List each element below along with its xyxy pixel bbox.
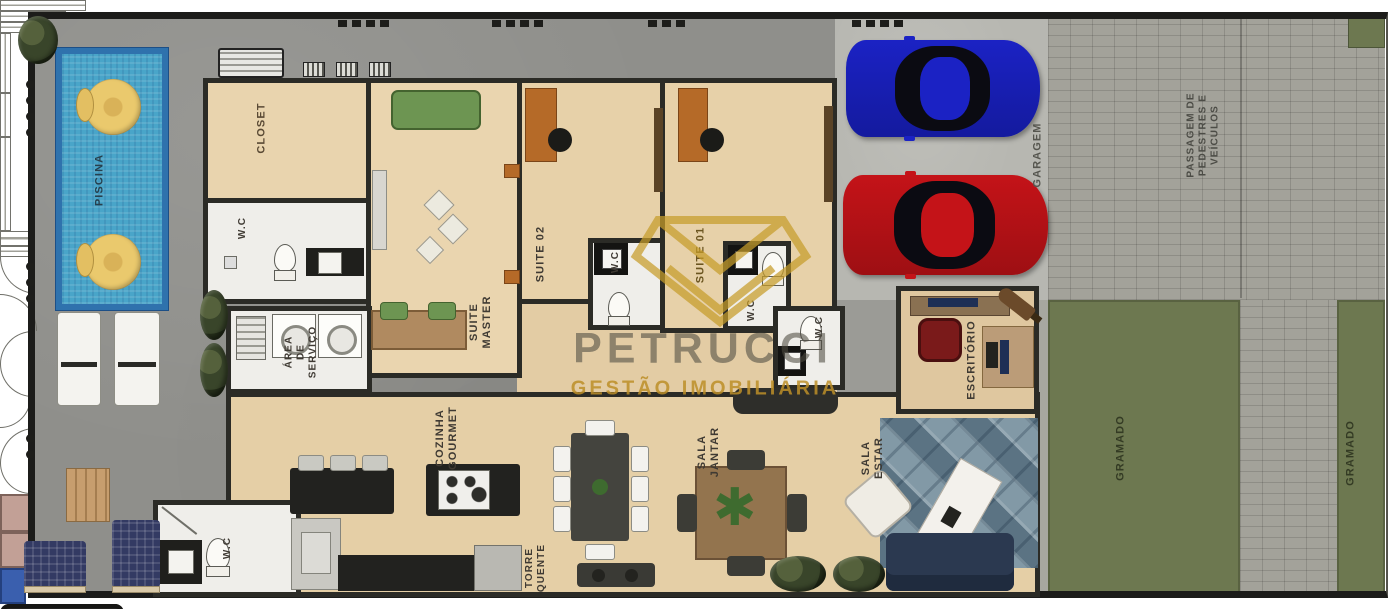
dining-chair xyxy=(553,506,571,532)
floor-plan: ✱ PISCINA CLOSET W.C SUITE MASTER SUITE … xyxy=(0,0,1400,609)
table-centerpiece xyxy=(592,479,608,495)
bed-master xyxy=(0,604,124,609)
plant xyxy=(833,556,885,592)
wall-shrub xyxy=(26,80,35,89)
fence-tick xyxy=(648,20,657,27)
dining-chair xyxy=(631,446,649,472)
fence-tick xyxy=(866,20,875,27)
room-label-piscina: PISCINA xyxy=(94,154,107,206)
plant xyxy=(200,290,228,340)
jantar-chair xyxy=(727,450,765,470)
wall-shrub xyxy=(26,262,35,271)
car-mirror xyxy=(904,36,915,41)
room-label-suite-master: SUITE MASTER xyxy=(468,295,494,348)
toilet xyxy=(274,244,296,272)
room-label-sala-jantar: SALA JANTAR xyxy=(696,427,722,477)
closet-drawer-blue xyxy=(0,568,26,604)
daybed xyxy=(391,90,481,130)
fence-tick xyxy=(352,20,361,27)
room-label-closet: CLOSET xyxy=(256,102,269,153)
outdoor-armchair-base xyxy=(112,586,160,593)
watermark-tagline: GESTÃO IMOBILIÁRIA xyxy=(571,378,839,401)
watermark-brand: PETRUCCI xyxy=(573,325,833,374)
desk-suite-01 xyxy=(678,88,708,162)
pool-float-backrest xyxy=(76,243,94,277)
fridge xyxy=(474,545,522,591)
tv-bench xyxy=(372,170,387,250)
car-mirror xyxy=(905,171,916,176)
ac-condenser-unit xyxy=(218,48,284,78)
shower-drain xyxy=(224,256,237,269)
headboard xyxy=(824,106,833,202)
gaming-chair xyxy=(918,318,962,362)
car-mirror xyxy=(905,274,916,279)
door-arc xyxy=(0,397,31,428)
nightstand xyxy=(504,270,520,284)
floor-grille xyxy=(336,62,358,77)
fence-tick xyxy=(534,20,543,27)
console-table xyxy=(577,563,655,587)
dining-chair xyxy=(631,506,649,532)
sun-lounger xyxy=(114,312,160,406)
room-label-cozinha: COZINHA GOURMET xyxy=(434,406,460,470)
outdoor-armchair xyxy=(24,541,86,589)
wall-shrub xyxy=(26,434,35,443)
area-label-passagem: PASSAGEM DE PEDESTRES E VEÍCULOS xyxy=(1185,92,1220,177)
plant-icon: ✱ xyxy=(713,482,757,534)
car-roof xyxy=(920,57,970,119)
desk-suite-02 xyxy=(525,88,557,162)
dining-chair xyxy=(585,544,615,560)
wall-shrub xyxy=(26,112,35,121)
sun-lounger-band xyxy=(61,362,97,367)
room-label-wc-master: W.C xyxy=(237,217,249,239)
outdoor-armchair-base xyxy=(24,586,86,593)
dining-chair xyxy=(553,446,571,472)
area-label-gramado-main: GRAMADO xyxy=(1115,415,1128,481)
sofa xyxy=(886,533,1014,591)
jantar-chair xyxy=(677,494,697,532)
diamond-logo-icon xyxy=(628,198,813,328)
sink xyxy=(318,252,342,274)
stove-cooktop xyxy=(438,470,490,510)
laundry-shelf xyxy=(236,316,266,360)
desk-chair xyxy=(428,302,456,320)
room-label-wc-suite-02: W.C xyxy=(610,251,622,273)
pc-tower xyxy=(986,342,998,368)
window xyxy=(0,93,11,137)
room-label-sala-estar: SALA ESTAR xyxy=(860,437,886,479)
room-label-torre-quente: TORRE QUENTE xyxy=(524,544,548,592)
plant xyxy=(770,556,826,592)
stool xyxy=(592,569,605,582)
floor-grille xyxy=(303,62,325,77)
fence-tick xyxy=(520,20,529,27)
wall-shrub xyxy=(26,96,35,105)
side-monitor xyxy=(1000,340,1009,374)
jantar-chair xyxy=(787,494,807,532)
headboard xyxy=(654,108,663,192)
sink xyxy=(168,550,194,574)
fence-tick xyxy=(894,20,903,27)
desk-chair xyxy=(380,302,408,320)
wall-shrub xyxy=(26,128,35,137)
kitchen-counter xyxy=(338,555,482,591)
car-blue xyxy=(846,40,1040,137)
office-monitor xyxy=(928,298,978,307)
outdoor-armchair xyxy=(112,520,160,588)
jantar-chair xyxy=(727,556,765,576)
wall-shrub xyxy=(26,450,35,459)
toilet-tank xyxy=(206,566,230,577)
door-arc xyxy=(0,463,31,494)
kitchen-island xyxy=(290,468,394,514)
fence-tick xyxy=(676,20,685,27)
fence-tick xyxy=(366,20,375,27)
desk-chair xyxy=(700,128,724,152)
plant xyxy=(18,16,58,64)
room-label-suite-02: SUITE 02 xyxy=(535,226,548,283)
fence-tick xyxy=(662,20,671,27)
floor-grille xyxy=(369,62,391,77)
wall-shrub xyxy=(26,294,35,303)
area-label-gramado-side: GRAMADO xyxy=(1345,420,1358,486)
window xyxy=(0,0,86,11)
bar-stool xyxy=(362,455,388,471)
sun-lounger-band xyxy=(118,362,156,367)
pool-float-backrest xyxy=(76,88,94,122)
plant xyxy=(200,343,228,397)
dryer-drum xyxy=(327,325,357,355)
car-mirror xyxy=(904,136,915,141)
fence-tick xyxy=(492,20,501,27)
fence-tick xyxy=(380,20,389,27)
window xyxy=(0,33,11,93)
room-label-wc-annex: W.C xyxy=(222,537,234,559)
dryer xyxy=(318,314,362,358)
stool xyxy=(625,569,638,582)
fence-tick xyxy=(880,20,889,27)
toilet-tank xyxy=(274,270,296,281)
desk-chair xyxy=(548,128,572,152)
nightstand xyxy=(504,164,520,178)
fence-tick xyxy=(338,20,347,27)
dining-chair xyxy=(553,476,571,502)
room-label-garagem: GARAGEM xyxy=(1032,122,1045,187)
car-red xyxy=(843,175,1048,275)
bar-stool xyxy=(330,455,356,471)
wall-shrub xyxy=(26,278,35,287)
dining-chair xyxy=(631,476,649,502)
room-label-area-servico: ÁREA DE SERVIÇO xyxy=(283,326,318,379)
kitchen-sink-basin xyxy=(301,532,331,574)
fence-tick xyxy=(506,20,515,27)
bar-stool xyxy=(298,455,324,471)
dining-chair xyxy=(585,420,615,436)
wood-pallet xyxy=(66,468,110,522)
room-closet xyxy=(203,78,371,204)
window xyxy=(0,137,11,231)
room-label-escritorio: ESCRITÓRIO xyxy=(966,320,979,399)
fence-tick xyxy=(852,20,861,27)
sun-lounger xyxy=(57,312,101,406)
car-roof xyxy=(921,193,974,257)
